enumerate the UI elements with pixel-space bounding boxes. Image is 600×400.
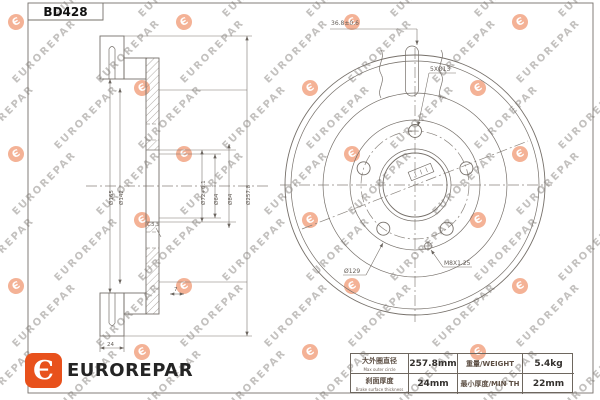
marking-box <box>408 163 434 180</box>
spec-max-outer-value: 257.8mm <box>409 354 458 374</box>
spec-minth-label: 最小厚度/MIN TH <box>458 374 523 394</box>
dim-label-d1: Ø165 <box>108 190 115 205</box>
section-view: Ø165 Ø142 Ø72+0.1 Ø64 Ø84 Ø257.8 C3.5 24… <box>86 36 268 352</box>
brand-symbol-icon: Є <box>25 353 62 388</box>
spec-max-outer-cn: 大外圈直径 <box>362 356 397 366</box>
chamfer-label: C3.5 <box>147 222 160 228</box>
spec-thickness-value: 24mm <box>409 374 458 394</box>
dim-label-d3: Ø72+0.1 <box>200 180 207 205</box>
drawing-sheet: { "title": "BD428", "watermark": { "text… <box>0 0 600 400</box>
spec-max-outer-label: 大外圈直径 Max outer circle <box>351 354 409 374</box>
spec-minth-value: 22mm <box>523 374 574 394</box>
thickness-label: 24 <box>107 342 114 348</box>
spec-thickness-en: Brake surface thickness <box>356 387 404 392</box>
band-height-label: 36.8±0.6 <box>331 20 359 27</box>
spec-table: 大外圈直径 Max outer circle 257.8mm 重量/WEIGHT… <box>350 353 573 393</box>
hub-dia-label: Ø129 <box>344 268 360 275</box>
spec-thickness-cn: 刹面厚度 <box>366 376 394 386</box>
part-number-label: BD428 <box>28 3 103 20</box>
spec-thickness-label: 刹面厚度 Brake surface thickness <box>351 374 409 394</box>
vane-width-label: 7 <box>174 287 178 293</box>
thread-label: M8X1.25 <box>444 260 471 267</box>
dim-label-d2: Ø142 <box>118 190 125 205</box>
dim-label-d5: Ø84 <box>227 193 234 205</box>
dim-label-d6: Ø257.8 <box>245 184 252 205</box>
technical-drawing: Ø165 Ø142 Ø72+0.1 Ø64 Ø84 Ø257.8 C3.5 24… <box>0 0 600 400</box>
spec-weight-label: 重量/WEIGHT <box>458 354 523 374</box>
stud-holes <box>357 125 473 236</box>
spec-weight-value: 5.4kg <box>523 354 574 374</box>
brand-logo: Є EUROREPAR <box>25 353 193 388</box>
brand-name: EUROREPAR <box>67 360 193 381</box>
front-view: 36.8±0.6 5XØ13 M8X1.25 Ø129 <box>280 20 552 322</box>
dim-label-d4: Ø64 <box>213 193 220 205</box>
spec-max-outer-en: Max outer circle <box>363 367 395 372</box>
bolt-holes-label: 5XØ13 <box>430 66 450 73</box>
